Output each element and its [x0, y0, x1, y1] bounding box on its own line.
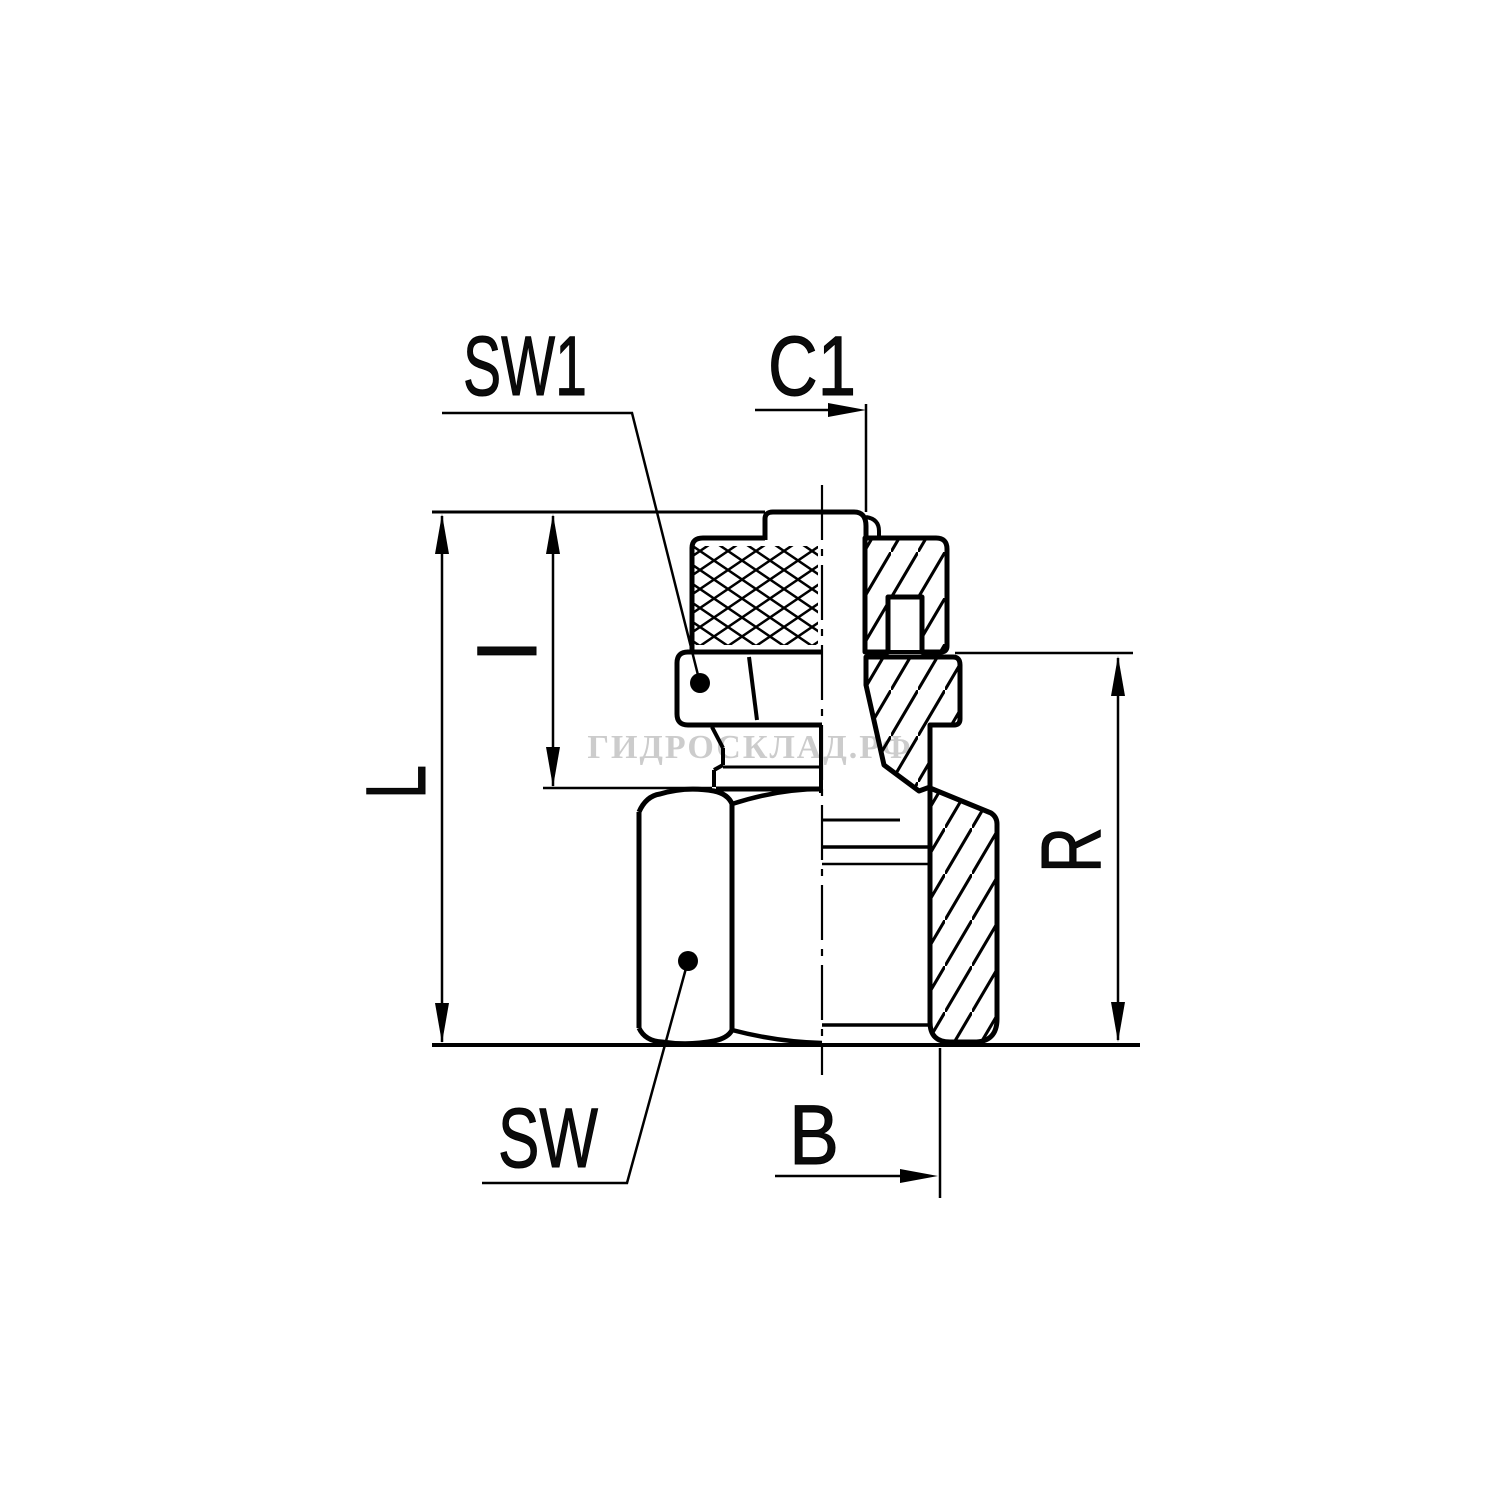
fitting-technical-drawing: ГИДРОСКЛАД.РФ — [0, 0, 1500, 1500]
leader-dot-sw — [678, 951, 698, 971]
label-C1: C1 — [768, 319, 856, 413]
collar-section — [930, 788, 997, 1042]
technical-drawing-page: ГИДРОСКЛАД.РФ — [0, 0, 1500, 1500]
label-I: I — [460, 639, 554, 662]
label-L: L — [349, 765, 443, 799]
knurl-pattern — [694, 546, 818, 645]
leader-dot-sw1 — [690, 673, 710, 693]
label-SW: SW — [498, 1091, 598, 1185]
label-R: R — [1024, 827, 1118, 873]
label-B: B — [789, 1088, 839, 1182]
watermark-text: ГИДРОСКЛАД.РФ — [587, 729, 912, 766]
label-SW1: SW1 — [463, 319, 587, 413]
